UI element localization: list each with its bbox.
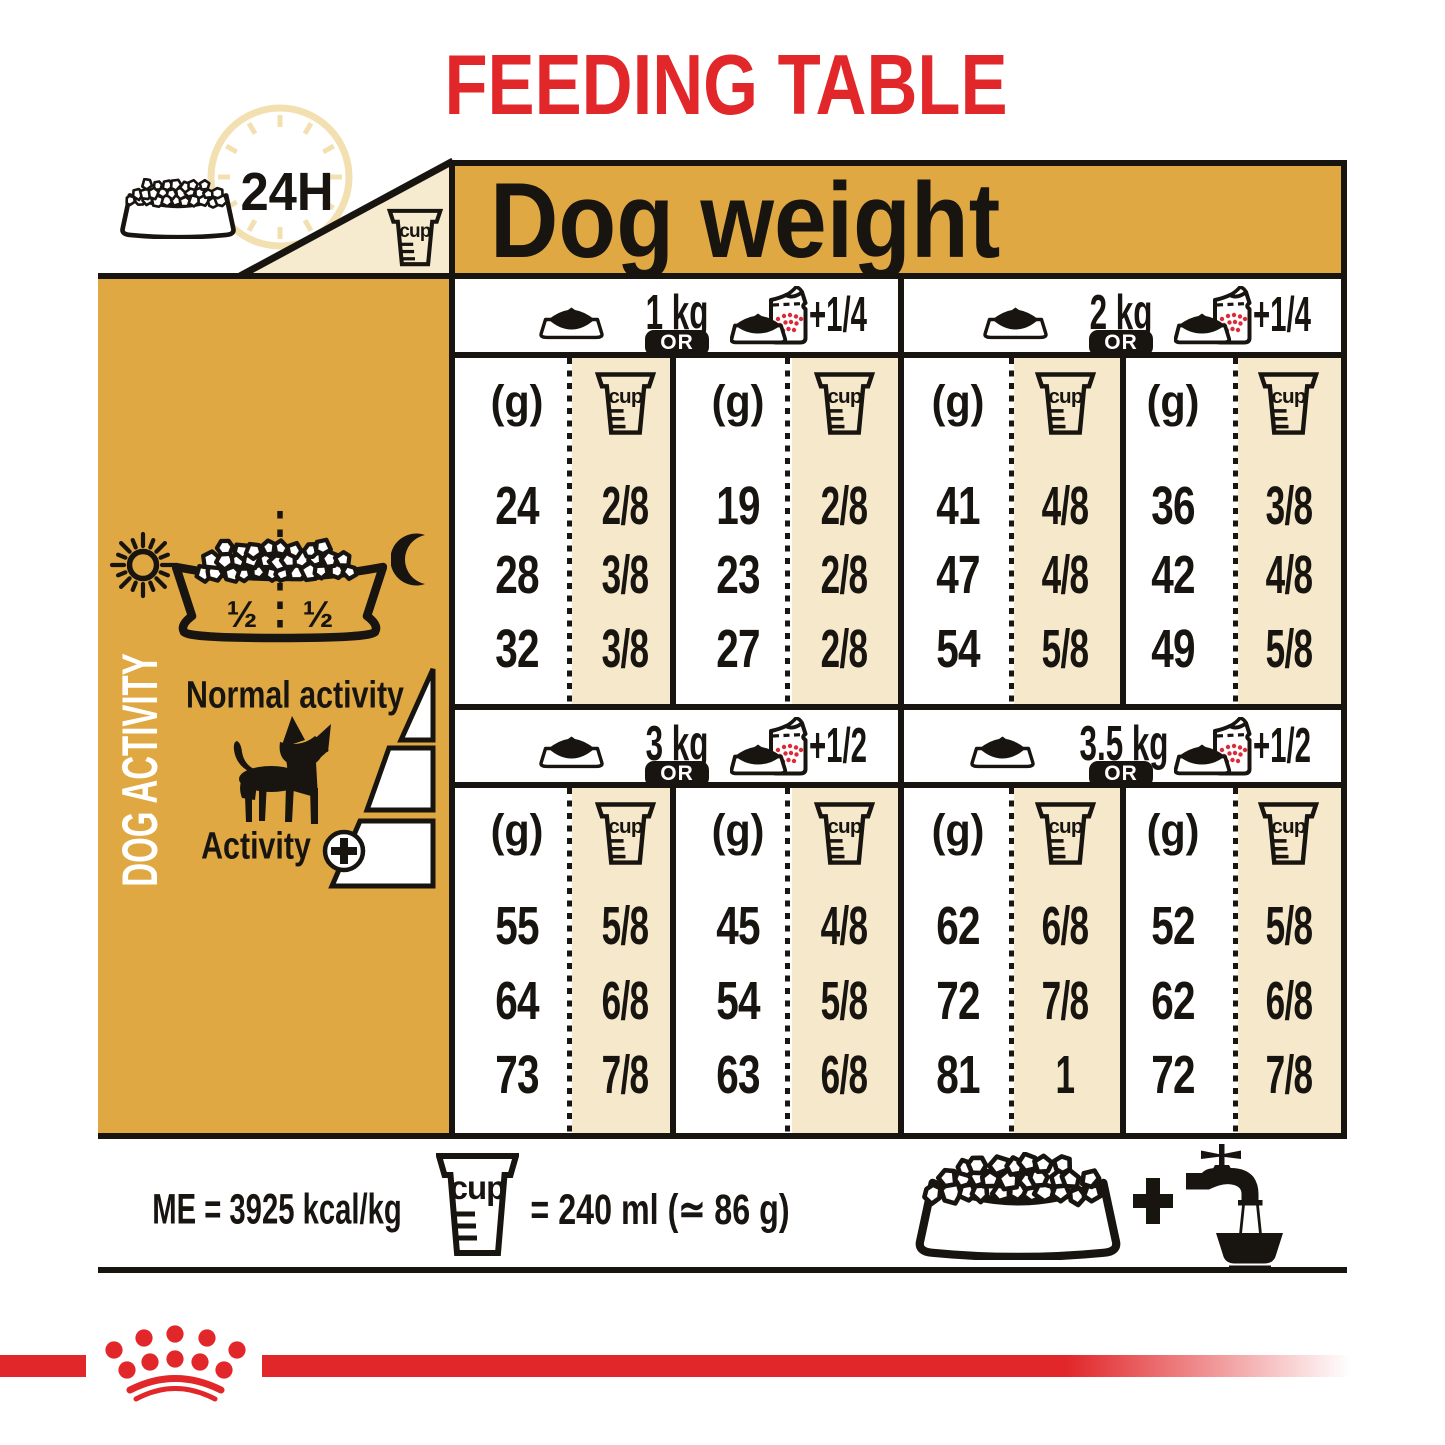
svg-text:½: ½ (227, 594, 258, 635)
svg-text:cup: cup (450, 1169, 506, 1206)
svg-text:½: ½ (303, 594, 334, 635)
